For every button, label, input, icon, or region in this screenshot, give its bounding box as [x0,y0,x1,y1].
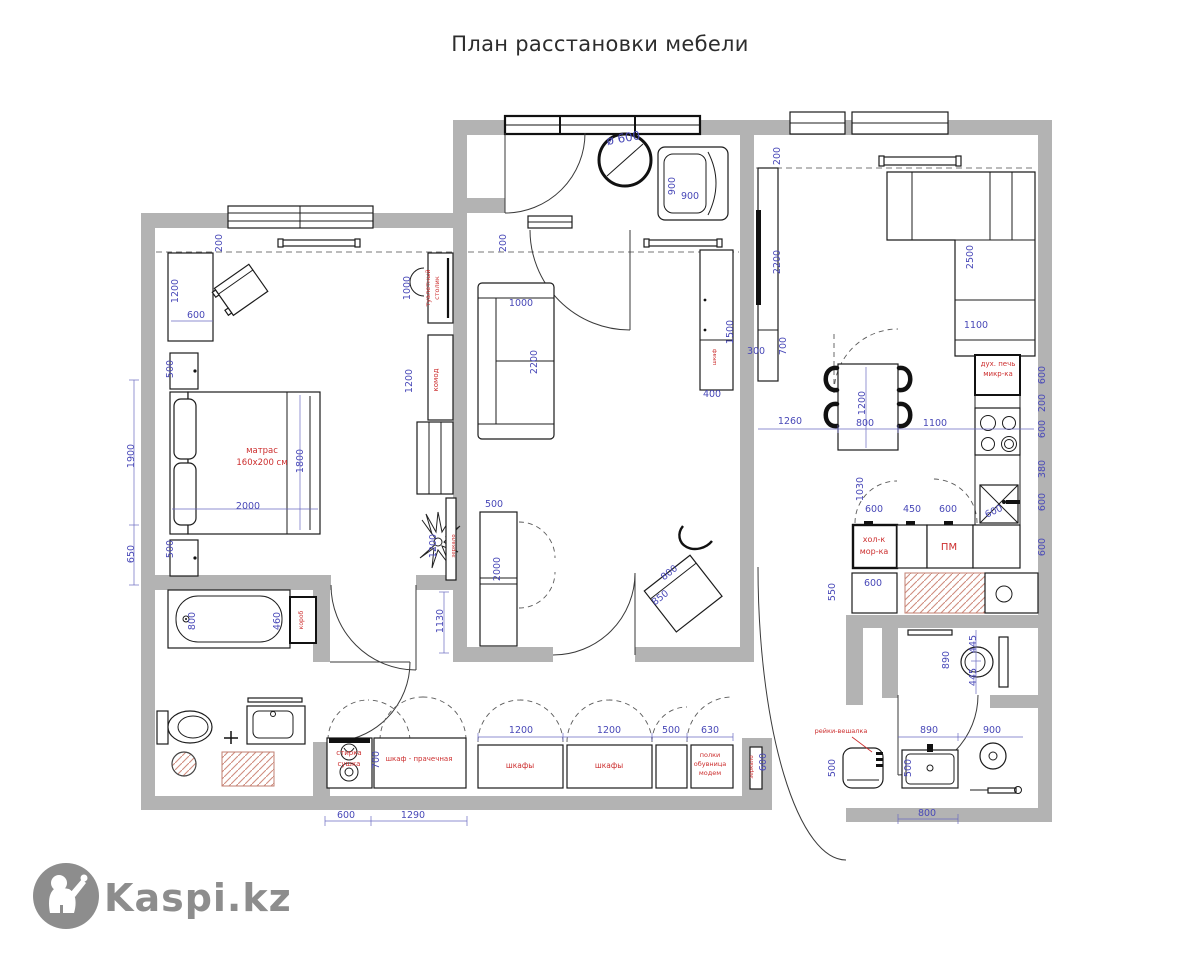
dimension-label: 500 [662,725,680,736]
dimension-label: 2000 [236,501,260,512]
dimension-label: 500 [485,499,503,510]
dimension-label: 1200 [597,725,621,736]
entry-counter [985,573,1038,613]
dimension-label: 1100 [923,418,947,429]
furniture-label: шкаф - прачечная [386,755,453,763]
bath-mat [222,752,274,786]
dimension-label: 700 [371,751,382,769]
screenshot-page: План расстановки мебели [0,0,1200,960]
dimension-label: 445 [968,668,979,686]
furniture-label: шкаф [712,348,718,365]
dimension-label: 200 [1037,394,1048,412]
corner-sofa [887,172,1035,356]
towel-rail [908,630,952,635]
toilet [157,711,212,744]
dimension-label: 890 [941,651,952,669]
furniture-label: 160x200 см [236,458,287,468]
dimension-label: 900 [667,177,678,195]
dimension-label: 445 [968,635,979,653]
dimension-label: 1800 [295,449,306,473]
dimension-label: 600 [1037,538,1048,556]
dimension-label: 1200 [428,534,439,558]
dimension-label: 600 [1037,420,1048,438]
dimension-label: 1200 [170,279,181,303]
wc-room [908,630,1008,687]
balcony-closet-door [505,133,585,213]
dining-chair [826,404,837,426]
dining-chair [899,368,910,390]
dimension-label: 2200 [529,350,540,374]
dimension-label: 500 [827,759,838,777]
dimension-label: 1000 [402,276,413,300]
dimension-label: 600 [1037,493,1048,511]
dimension-label: 600 [939,504,957,515]
furniture-label: хол-к [863,535,886,544]
vanity-sink [247,698,305,744]
watermark-text: Kaspi.kz [104,876,292,920]
dimension-label: 380 [1037,460,1048,478]
dining-chair [826,368,837,390]
dimension-label: 450 [903,504,921,515]
dimension-label: 200 [498,234,509,252]
dimension-label: 1900 [126,444,137,468]
dining-table-set [826,364,911,450]
windows [228,112,948,228]
faucet-symbol [224,731,238,744]
dimension-label: 1260 [778,416,802,427]
dimension-label: 630 [701,725,719,736]
open-shelf [417,422,453,494]
furniture-label: комод [432,368,440,391]
dimension-label: 900 [681,191,699,202]
furniture-label: полки [700,751,721,759]
furniture-labels: матрас160x200 смтуалетныйстоликкомодзерк… [236,269,1015,778]
bathroom-door [330,662,410,742]
dimension-label: 1200 [857,391,868,415]
stool [172,752,196,776]
dimension-label: 800 [187,612,198,630]
dimension-label: 500 [165,360,176,378]
dimension-label: 500 [903,759,914,777]
furniture-label: туалетный [424,269,432,306]
dimension-label: 600 [865,504,883,515]
dimension-label: 1200 [404,369,415,393]
dimension-label: 600 [187,310,205,321]
furniture-label: стирка [336,749,361,757]
washing-machine-area [905,573,985,613]
watermark: Kaspi.kz [33,863,292,929]
page-title: План расстановки мебели [451,32,748,56]
dimension-label: 500 [165,540,176,558]
dimension-label: 1290 [401,810,425,821]
dimension-label: 2500 [965,245,976,269]
dimension-label: 800 [856,418,874,429]
dimension-label: 600 [1037,366,1048,384]
cabinet-dashed-doors [519,522,555,608]
floor-plan: План расстановки мебели [0,0,1200,960]
bedroom-door [331,585,416,670]
furniture-label: сушка [338,760,361,768]
bedroom-radiator [278,239,360,247]
middle-room-radiator [644,239,722,247]
dimension-label: 600 [337,810,355,821]
bedroom-window [228,206,373,228]
base-cabinet [897,525,927,568]
dimension-label: 1000 [509,298,533,309]
furniture-label: мор-ка [860,547,889,556]
furniture-label: зеркало [451,534,457,558]
laundry-closet [374,738,466,788]
dimension-label: 300 [747,346,765,357]
stove [975,408,1020,455]
dimension-label: 600 [758,753,769,771]
dining-chair [899,404,910,426]
dimension-label: 650 [126,545,137,563]
hall-cabinet-small [656,745,687,788]
dimension-label: 1130 [435,609,446,633]
furniture-label: обувница [694,760,727,768]
dimension-label: 600 [864,578,882,589]
dimension-label: 1030 [855,477,866,501]
furniture-label: матрас [246,446,278,456]
bedroom-furniture [168,253,453,576]
dimension-label: 2000 [492,557,503,581]
dimension-label: 1100 [964,320,988,331]
living-kitchen-furniture [756,168,1038,613]
bench-hanger [843,737,883,788]
living-windows [790,112,948,134]
dimension-label: 400 [703,389,721,400]
dimension-label: 200 [214,234,225,252]
dimension-label: 550 [827,583,838,601]
dimension-label: 200 [772,147,783,165]
furniture-label: модем [699,769,721,777]
bathroom-furniture [157,590,316,786]
furniture-label: зеркало [749,755,755,779]
furniture-label: рейки-вешалка [815,727,868,735]
middle-room-door [553,573,635,655]
balcony-window [505,116,700,134]
dimension-label: 800 [918,808,936,819]
furniture-label: ПМ [941,542,957,553]
furniture-label: микр-ка [983,370,1013,378]
dimension-label: 460 [272,612,283,630]
furniture-label: короб [298,610,305,629]
tv [756,210,761,305]
furniture-label: шкафы [506,761,534,770]
dimension-label: 700 [778,337,789,355]
pantry-dashed-doors [855,479,977,523]
bedroom-chair [211,264,268,317]
shower-head [970,743,1022,794]
dimension-label: 900 [983,725,1001,736]
furniture-label: шкафы [595,761,623,770]
dimension-label: 1200 [509,725,533,736]
dimension-label: 890 [920,725,938,736]
furniture-label: дух. печь [981,360,1016,368]
balcony-furniture [599,134,728,220]
entrance-door [758,567,846,860]
dimension-label: 1500 [725,320,736,344]
dimension-label: 2200 [772,250,783,274]
corner-cabinet [973,525,1020,568]
shower-room [902,743,1022,794]
furniture-label: столик [433,276,441,300]
living-radiator [879,156,961,166]
desk-chair [679,526,712,549]
balcony-small-window [528,216,572,228]
